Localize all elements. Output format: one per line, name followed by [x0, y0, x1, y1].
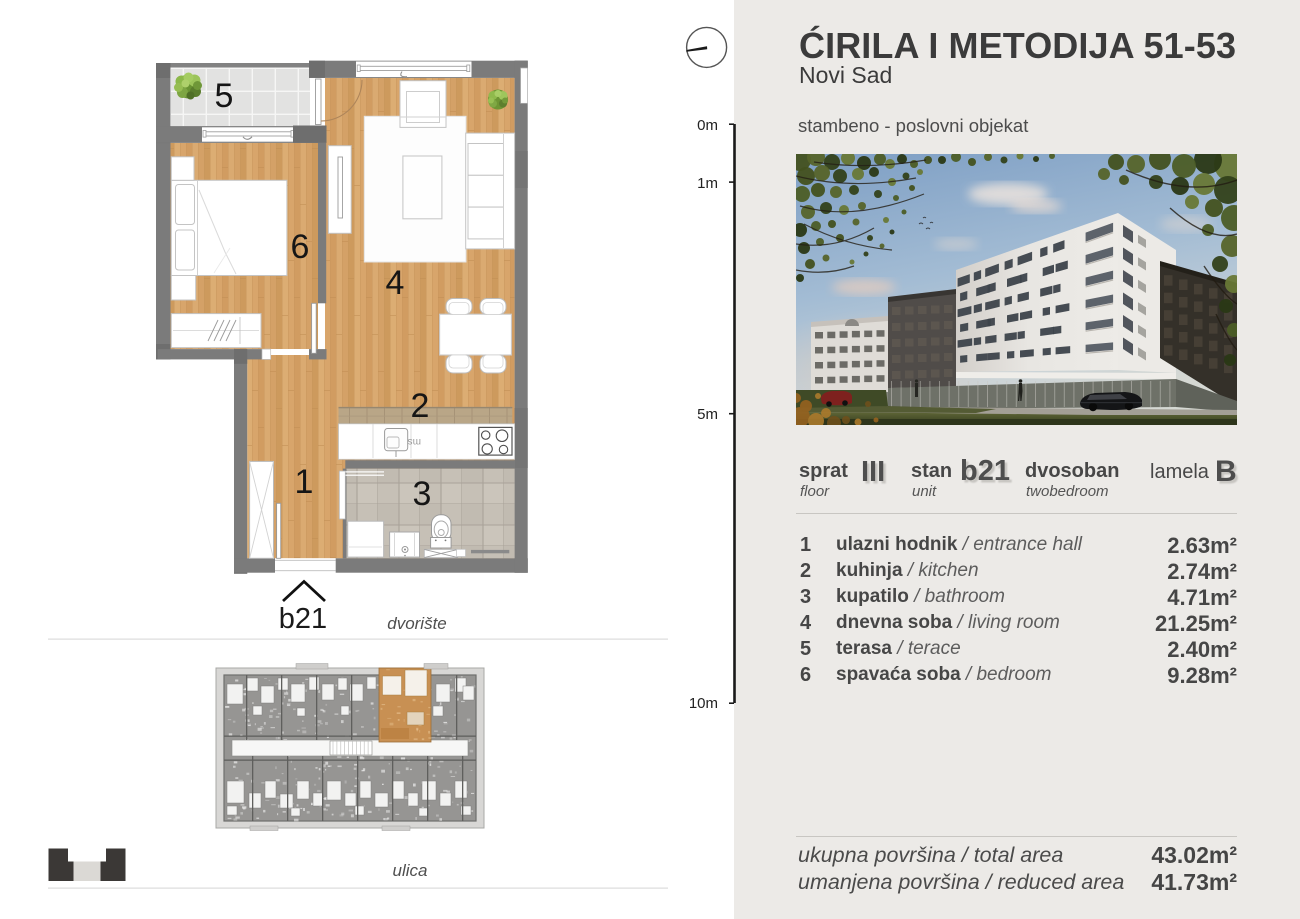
svg-text:4: 4 — [386, 264, 405, 302]
svg-text:ms: ms — [408, 436, 421, 447]
svg-text:5: 5 — [215, 77, 234, 115]
svg-text:10m: 10m — [689, 695, 718, 712]
svg-text:1: 1 — [295, 463, 314, 501]
svg-text:0m: 0m — [697, 117, 718, 134]
svg-text:ulica: ulica — [393, 861, 428, 880]
svg-text:3: 3 — [413, 475, 432, 513]
svg-text:1m: 1m — [697, 175, 718, 192]
svg-text:dvorište: dvorište — [387, 614, 447, 633]
svg-text:2: 2 — [411, 387, 430, 425]
svg-text:b21: b21 — [279, 603, 327, 635]
svg-text:5m: 5m — [697, 406, 718, 423]
svg-text:6: 6 — [291, 228, 310, 266]
